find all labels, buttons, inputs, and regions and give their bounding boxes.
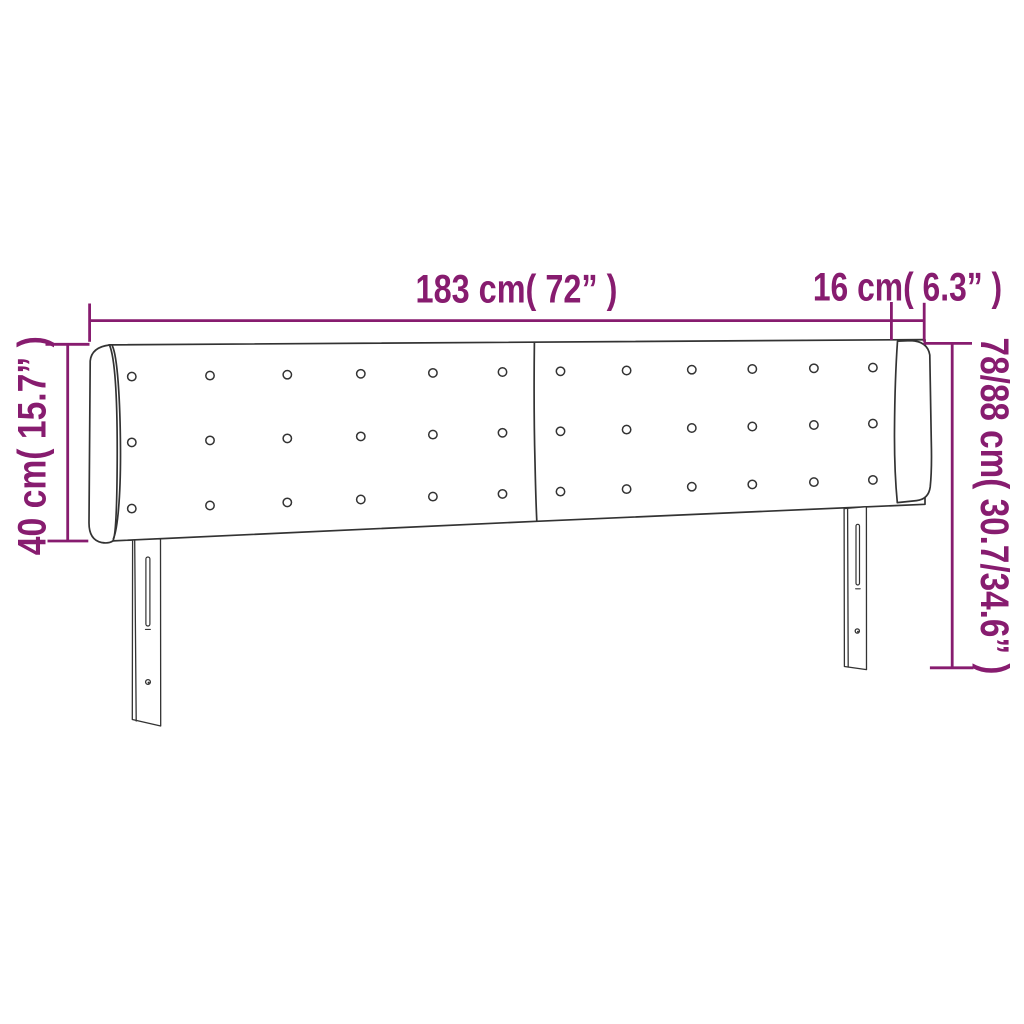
svg-text:16 cm( 6.3” ): 16 cm( 6.3” ) xyxy=(813,264,1002,309)
svg-text:40 cm( 15.7” ): 40 cm( 15.7” ) xyxy=(10,336,54,555)
svg-text:78/88 cm( 30.7/34.6” ): 78/88 cm( 30.7/34.6” ) xyxy=(972,338,1017,675)
svg-text:183 cm( 72” ): 183 cm( 72” ) xyxy=(416,266,618,311)
